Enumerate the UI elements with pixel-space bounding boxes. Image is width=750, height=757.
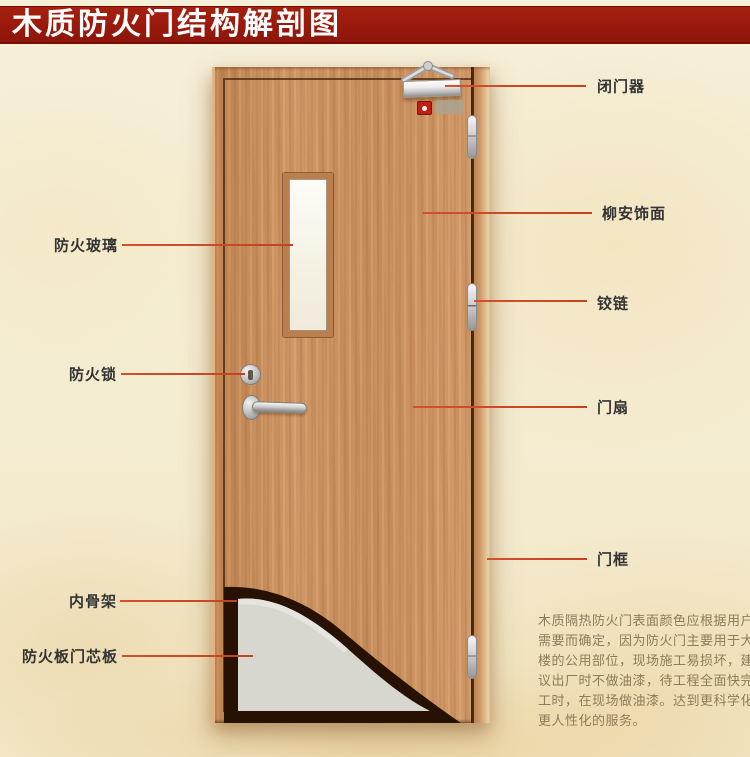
annotation-veneer: 柳安饰面 [602, 203, 666, 224]
alarm-indicator-light [422, 106, 427, 111]
note-line: 需要而确定，因为防火门主要用于大 [538, 631, 728, 651]
label-plate [436, 100, 463, 114]
title-banner: 木质防火门结构解剖图 [0, 6, 750, 44]
annotation-core-board: 防火板门芯板 [22, 646, 118, 667]
handle-lever [252, 401, 307, 414]
door-leaf [212, 67, 473, 723]
door-frame [473, 67, 490, 723]
keyhole [248, 370, 253, 380]
leader-line-door-closer [445, 85, 586, 87]
hinge-middle [467, 283, 477, 331]
annotation-door-leaf: 门扇 [597, 397, 629, 418]
door-closer-body [403, 79, 462, 98]
hinge-bottom [467, 635, 477, 679]
door-gap-line [471, 67, 474, 723]
leader-line-inner-skeleton [120, 600, 237, 602]
cutaway-section [224, 583, 462, 723]
leader-line-fire-glass [122, 244, 293, 246]
annotation-door-frame: 门框 [597, 549, 629, 570]
leader-line-hinge [474, 300, 587, 302]
fire-door-illustration [212, 67, 490, 723]
glass-window [283, 173, 333, 337]
leader-line-door-leaf [413, 406, 587, 408]
page-title: 木质防火门结构解剖图 [0, 10, 342, 40]
infographic-canvas: 木质防火门结构解剖图 [0, 0, 750, 757]
leader-line-veneer [423, 212, 592, 214]
note-line: 工时，在现场做油漆。达到更科学化 [538, 691, 728, 711]
note-line: 更人性化的服务。 [538, 711, 728, 731]
annotation-inner-skeleton: 内骨架 [69, 591, 117, 612]
core-board-shape [238, 599, 430, 711]
annotation-fire-lock: 防火锁 [69, 364, 117, 385]
annotation-fire-glass: 防火玻璃 [54, 235, 118, 256]
leader-line-core-board [122, 655, 253, 657]
note-line: 楼的公用部位，现场施工易损坏，建 [538, 651, 728, 671]
alarm-indicator [417, 101, 432, 115]
note-line: 木质隔热防火门表面颜色应根据用户 [538, 611, 728, 631]
leader-line-door-frame [487, 558, 587, 560]
hinge-top [467, 115, 477, 159]
description-note: 木质隔热防火门表面颜色应根据用户 需要而确定，因为防火门主要用于大 楼的公用部位… [538, 611, 728, 731]
annotation-hinge: 铰链 [597, 293, 629, 314]
leader-line-fire-lock [121, 373, 245, 375]
note-line: 议出厂时不做油漆，待工程全面快完 [538, 671, 728, 691]
annotation-door-closer: 闭门器 [597, 76, 645, 97]
